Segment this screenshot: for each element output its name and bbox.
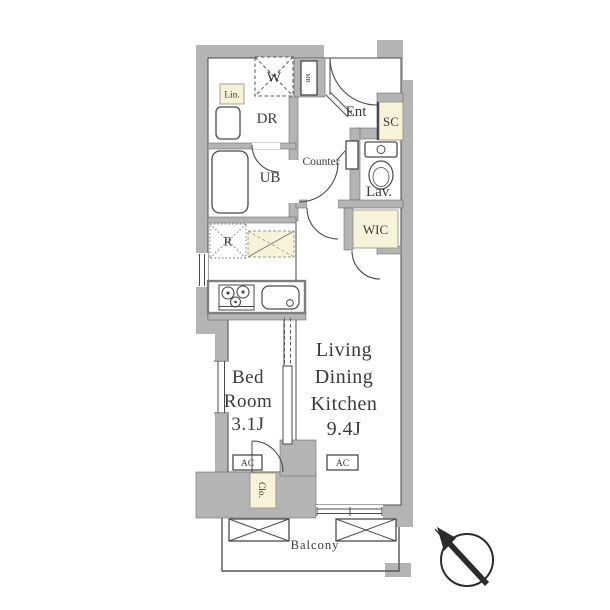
floorplan-canvas: W Lin. DR MB Ent SC Counter UB Lav. WIC … <box>0 0 610 610</box>
balcony-hatch-right <box>336 519 396 541</box>
bedroom-label-size: 3.1J <box>231 414 264 435</box>
bedroom-label-line2: Room <box>224 391 272 412</box>
wic-label: WIC <box>363 222 388 237</box>
ldk-label-line2: Dining <box>315 366 374 388</box>
balcony-label: Balcony <box>291 538 340 552</box>
ac-ldk-label: AC <box>336 459 349 469</box>
washbasin <box>216 107 240 139</box>
kitchen-counter <box>208 281 305 313</box>
window-left-wall <box>196 253 208 287</box>
entrance-label: Ent <box>346 104 368 120</box>
ldk-label-line3: Kitchen <box>311 393 378 415</box>
doorway-ub <box>252 143 280 149</box>
closet-label: Clo. <box>256 482 266 498</box>
bathtub <box>212 151 248 213</box>
balcony-hatch-left <box>229 519 289 541</box>
counter-label: Counter <box>302 156 339 168</box>
doorway-ldk <box>307 200 338 208</box>
ac-bedroom-label: AC <box>241 459 254 469</box>
wall-balcony-corner <box>385 563 411 577</box>
bedroom-label-line1: Bed <box>232 367 264 388</box>
linen-label: Lin. <box>224 91 240 101</box>
wall-wic-left <box>344 208 353 250</box>
wall-right <box>401 80 413 497</box>
shoe-closet-label: SC <box>383 114 399 129</box>
wall-top <box>196 45 324 58</box>
ub-label: UB <box>260 170 281 186</box>
ldk-label-line1: Living <box>316 339 372 361</box>
meter-box-label: MB <box>304 73 310 82</box>
partition-bedroom-ldk <box>283 318 292 444</box>
doorway-dr <box>288 160 299 203</box>
wall-bedroom-door-pier <box>280 440 316 476</box>
window-balcony-sliding <box>316 505 383 518</box>
wall-sc-top <box>377 93 403 103</box>
wall-hall-bottom-right <box>338 200 403 208</box>
dr-label: DR <box>257 111 278 127</box>
wall-ub-kitchen <box>208 217 296 223</box>
stove <box>219 285 254 310</box>
cabinet-hatched <box>248 231 294 257</box>
compass-icon <box>435 527 493 586</box>
lavatory-label: Lav. <box>366 184 392 200</box>
washer-label: W <box>267 70 282 86</box>
sink <box>262 286 299 309</box>
ldk-label-size: 9.4J <box>327 418 362 440</box>
refrigerator-label: R <box>224 234 233 249</box>
